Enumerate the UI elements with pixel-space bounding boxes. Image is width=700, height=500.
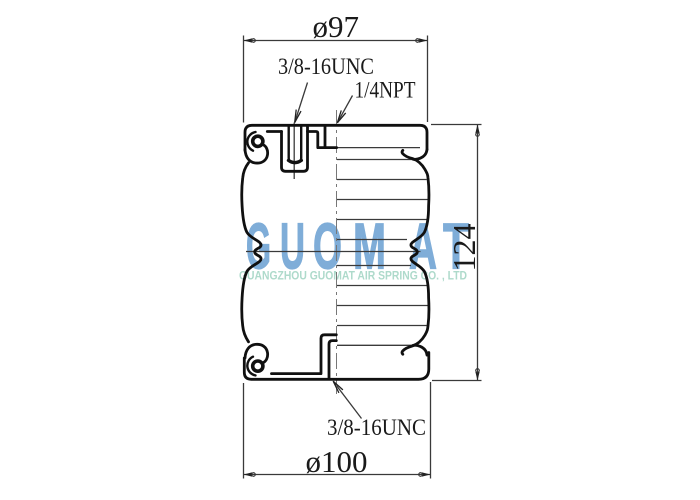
svg-text:3/8-16UNC: 3/8-16UNC — [278, 54, 374, 79]
svg-text:3/8-16UNC: 3/8-16UNC — [327, 415, 426, 440]
svg-text:ø100: ø100 — [306, 444, 368, 479]
svg-text:GUANGZHOU GUOMAT AIR SPRING CO: GUANGZHOU GUOMAT AIR SPRING CO. , LTD — [239, 269, 467, 283]
svg-text:1/4NPT: 1/4NPT — [355, 78, 416, 103]
svg-text:124: 124 — [446, 224, 482, 272]
svg-text:ø97: ø97 — [313, 9, 360, 44]
